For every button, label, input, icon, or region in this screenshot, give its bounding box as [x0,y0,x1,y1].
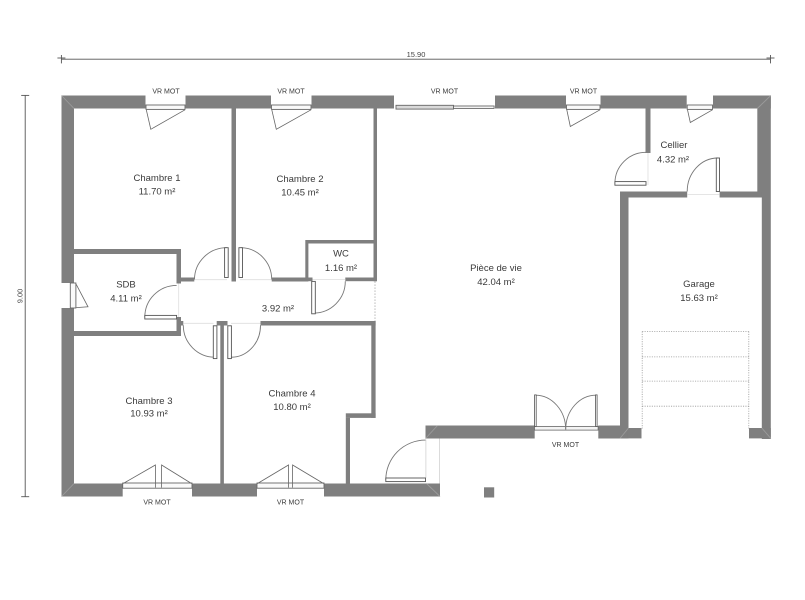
svg-text:15.90: 15.90 [407,50,426,59]
svg-text:15.63 m²: 15.63 m² [680,293,718,304]
svg-text:VR MOT: VR MOT [152,89,180,96]
svg-text:Cellier: Cellier [661,140,688,151]
svg-text:1.16 m²: 1.16 m² [325,263,357,274]
svg-text:SDB: SDB [116,279,136,290]
svg-text:4.11 m²: 4.11 m² [110,293,142,304]
svg-text:Chambre 1: Chambre 1 [134,173,181,184]
svg-text:VR MOT: VR MOT [143,500,171,507]
svg-text:VR MOT: VR MOT [552,442,580,449]
svg-text:Chambre 2: Chambre 2 [277,174,324,185]
svg-text:VR MOT: VR MOT [570,89,598,96]
svg-text:11.70 m²: 11.70 m² [139,187,176,198]
svg-text:VR MOT: VR MOT [277,500,305,507]
svg-text:VR MOT: VR MOT [277,89,305,96]
svg-text:42.04 m²: 42.04 m² [477,277,515,288]
svg-text:10.45 m²: 10.45 m² [281,187,319,198]
svg-text:4.32 m²: 4.32 m² [657,155,689,166]
svg-text:10.80 m²: 10.80 m² [273,402,311,413]
svg-text:3.92 m²: 3.92 m² [262,303,294,314]
svg-text:Chambre 3: Chambre 3 [126,396,173,407]
svg-text:9.00: 9.00 [16,289,25,304]
svg-text:Garage: Garage [683,279,715,290]
svg-text:Pièce de vie: Pièce de vie [470,263,522,274]
svg-text:WC: WC [333,248,349,259]
svg-text:10.93 m²: 10.93 m² [130,409,168,420]
svg-text:VR MOT: VR MOT [431,89,459,96]
svg-text:Chambre 4: Chambre 4 [269,389,316,400]
